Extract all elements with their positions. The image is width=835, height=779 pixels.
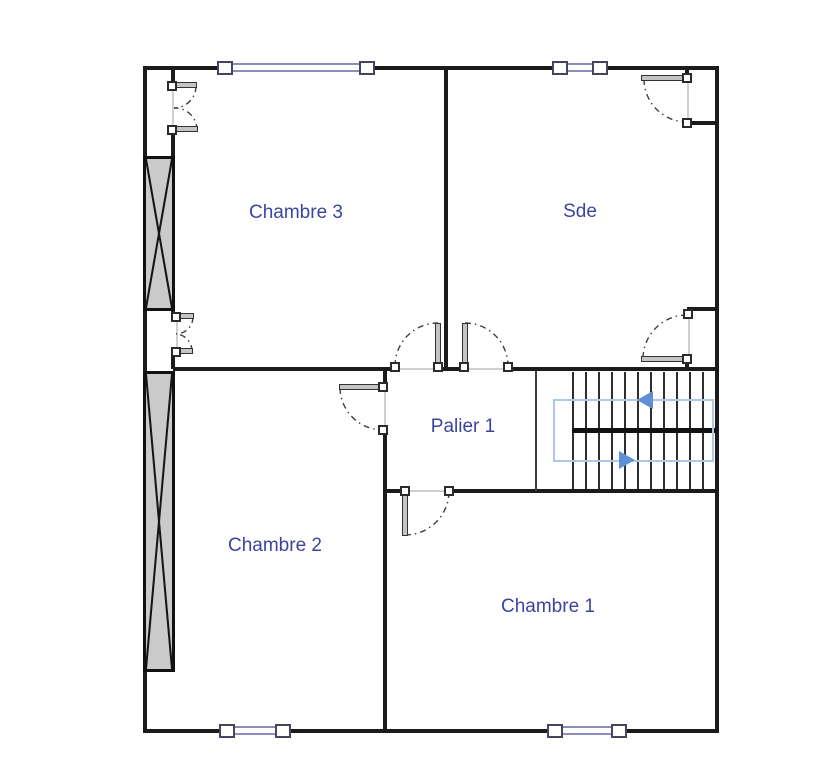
door-leaf-closet2-bottom	[179, 348, 193, 354]
wall-closet1-nub-bottom	[171, 133, 175, 158]
opening-line-palier-chambre1	[409, 490, 445, 492]
outer-wall-bottom-segment	[291, 729, 547, 733]
window-chambre2	[235, 726, 275, 735]
door-jamb	[378, 425, 388, 435]
chimney-cross-hatch	[146, 374, 172, 669]
chimney-cross-hatch	[146, 159, 172, 308]
chimney-block-upper	[143, 156, 175, 311]
wall-stairs-chambre1-divider	[449, 489, 719, 493]
door-jamb	[503, 362, 513, 372]
outer-wall-bottom-segment	[627, 729, 719, 733]
door-arc-palier-chambre3	[395, 323, 438, 366]
window-cap	[275, 724, 291, 738]
window-chambre1	[563, 726, 611, 735]
opening-line-palier-chambre2	[384, 391, 386, 426]
outer-wall-top-segment	[143, 66, 217, 70]
door-jamb	[683, 309, 693, 319]
door-hinge	[167, 125, 177, 135]
door-leaf-palier-sde	[462, 323, 468, 364]
opening-line-sde-closet-top	[687, 82, 689, 119]
door-arc-palier-chambre2	[340, 388, 384, 430]
outer-wall-right	[715, 66, 719, 733]
outer-wall-bottom-segment	[143, 729, 219, 733]
door-leaf-sde-niche-bottom	[641, 356, 683, 362]
window-sde	[568, 63, 592, 72]
window-cap	[592, 61, 608, 75]
opening-line-palier-sde	[468, 368, 504, 370]
room-label-chambre1: Chambre 1	[501, 596, 595, 618]
wall-chambre3-sde-divider	[444, 68, 448, 368]
door-arc-sde-closet-top	[644, 79, 687, 122]
door-jamb	[444, 486, 454, 496]
room-label-palier1: Palier 1	[431, 416, 495, 438]
door-leaf-sde-closet-top	[641, 75, 683, 81]
door-leaf-closet1-bottom	[176, 126, 198, 132]
door-leaf-palier-chambre1	[402, 494, 408, 536]
window-cap	[219, 724, 235, 738]
opening-line-sde-niche-bottom	[688, 318, 690, 355]
stair-up-flight-arrow-icon	[637, 391, 653, 409]
door-jamb	[390, 362, 400, 372]
door-hinge	[167, 81, 177, 91]
door-swing-arcs	[0, 0, 835, 779]
door-arc-closet1-leaf-top	[174, 86, 196, 108]
opening-line-closet1	[172, 90, 174, 126]
window-chambre3	[233, 63, 359, 72]
room-label-chambre2: Chambre 2	[228, 535, 322, 557]
window-cap	[611, 724, 627, 738]
door-hinge	[378, 382, 388, 392]
door-arc-palier-sde	[465, 323, 508, 366]
door-hinge	[682, 354, 692, 364]
window-cap	[359, 61, 375, 75]
window-cap	[547, 724, 563, 738]
room-label-chambre3: Chambre 3	[249, 202, 343, 224]
door-leaf-palier-chambre2	[339, 384, 380, 390]
door-hinge	[459, 362, 469, 372]
window-cap	[217, 61, 233, 75]
door-arc-sde-niche-bottom	[643, 315, 687, 358]
outer-wall-top-segment	[608, 66, 719, 70]
wall-chambre2-chambre1-divider	[383, 431, 387, 733]
room-label-sde: Sde	[563, 201, 597, 223]
door-arc-palier-chambre1	[405, 492, 449, 535]
chimney-block-lower	[143, 371, 175, 672]
door-hinge	[433, 362, 443, 372]
floor-plan-canvas: Chambre 3 Sde Palier 1 Chambre 2 Chambre…	[0, 0, 835, 779]
door-hinge	[400, 486, 410, 496]
door-hinge	[171, 347, 181, 357]
door-hinge	[682, 73, 692, 83]
outer-wall-top-segment	[375, 66, 552, 70]
opening-line-closet2	[176, 321, 178, 348]
door-jamb	[682, 118, 692, 128]
opening-line-palier-chambre3	[399, 368, 434, 370]
wall-chambre3-chambre2-divider	[173, 367, 393, 371]
window-cap	[552, 61, 568, 75]
door-hinge	[171, 312, 181, 322]
door-leaf-palier-chambre3	[435, 323, 441, 364]
door-leaf-closet1-top	[176, 82, 197, 88]
wall-closet2-nub-bottom	[171, 355, 175, 369]
stair-down-flight-arrow-icon	[619, 451, 635, 469]
door-leaf-closet2-top	[179, 313, 194, 319]
stair-left-edge	[535, 371, 537, 491]
